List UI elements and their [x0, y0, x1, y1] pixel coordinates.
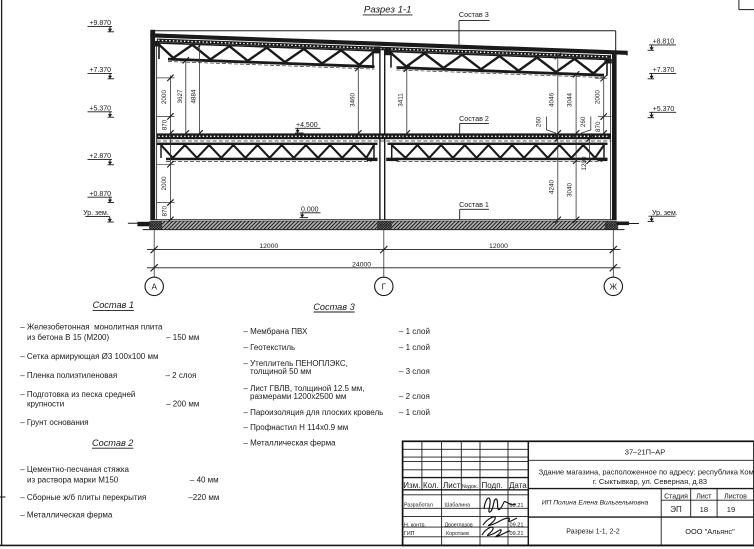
svg-text:3411: 3411	[398, 93, 405, 107]
svg-text:Состав 2: Состав 2	[459, 114, 489, 123]
svg-text:толщиной 50 мм: толщиной 50 мм	[250, 367, 311, 376]
svg-text:А: А	[151, 282, 157, 291]
svg-text:1200: 1200	[581, 156, 588, 171]
svg-text:Состав 3: Состав 3	[313, 302, 355, 312]
svg-text:+5.370: +5.370	[653, 106, 675, 113]
svg-text:09.21: 09.21	[510, 503, 524, 509]
svg-text:– Сборные ж/б плиты перекрытия: – Сборные ж/б плиты перекрытия	[20, 493, 146, 502]
svg-text:+7.370: +7.370	[653, 67, 675, 74]
svg-text:12000: 12000	[489, 243, 508, 250]
svg-text:– 150 мм: – 150 мм	[166, 333, 199, 342]
svg-text:Стадия: Стадия	[664, 493, 688, 500]
svg-text:Г: Г	[382, 282, 387, 291]
svg-text:09.21: 09.21	[510, 531, 524, 537]
svg-text:2000: 2000	[161, 176, 168, 191]
svg-text:– Пленка полиэтиленовая: – Пленка полиэтиленовая	[20, 371, 117, 380]
svg-text:+7.370: +7.370	[89, 67, 111, 74]
svg-text:– 1 слой: – 1 слой	[399, 327, 430, 336]
svg-text:Состав 1: Состав 1	[459, 200, 489, 209]
svg-text:Дата: Дата	[509, 481, 527, 490]
svg-text:– Подготовка из песка средней: – Подготовка из песка средней	[20, 390, 135, 399]
svg-text:–220 мм: –220 мм	[188, 493, 219, 502]
svg-text:2000: 2000	[161, 90, 168, 105]
svg-text:– Железобетонная монолитная п: – Железобетонная монолитная плита	[20, 322, 163, 331]
svg-text:Кол.: Кол.	[423, 481, 439, 490]
svg-text:– Мембрана ПВХ: – Мембрана ПВХ	[243, 327, 308, 336]
svg-text:24000: 24000	[352, 261, 371, 268]
svg-text:Лист: Лист	[696, 493, 712, 500]
svg-text:Изм.: Изм.	[403, 481, 420, 490]
svg-text:2000: 2000	[594, 90, 601, 105]
svg-text:– Сетка армирующая Ø3 100х100: – Сетка армирующая Ø3 100х100 мм	[20, 352, 158, 361]
svg-text:ГИП: ГИП	[404, 531, 415, 537]
svg-text:– 1 слой: – 1 слой	[399, 343, 430, 352]
svg-text:Коротаев: Коротаев	[446, 531, 469, 537]
svg-text:870: 870	[162, 205, 169, 216]
svg-text:4884: 4884	[191, 89, 198, 104]
svg-text:– 3 слоя: – 3 слоя	[399, 367, 430, 376]
svg-text:Подп.: Подп.	[482, 481, 503, 490]
svg-text:– 2 слоя: – 2 слоя	[166, 371, 197, 380]
svg-text:260: 260	[536, 116, 543, 127]
svg-text:Разработал: Разработал	[404, 503, 433, 509]
svg-text:ЭП: ЭП	[670, 505, 682, 514]
svg-text:– Цементно-песчаная стяжка: – Цементно-песчаная стяжка	[20, 465, 129, 474]
svg-text:37–21П–АР: 37–21П–АР	[625, 448, 665, 457]
svg-text:4046: 4046	[548, 93, 555, 108]
svg-text:3627: 3627	[177, 89, 184, 104]
svg-text:260: 260	[580, 116, 587, 127]
svg-text:Двоеглазов: Двоеглазов	[445, 522, 473, 528]
svg-text:ООО "Альянс": ООО "Альянс"	[685, 527, 735, 536]
svg-text:– Металлическая ферма: – Металлическая ферма	[243, 439, 336, 448]
svg-text:19: 19	[727, 505, 735, 514]
svg-text:Ур. зем.: Ур. зем.	[83, 210, 109, 217]
svg-text:из раствора марки М150: из раствора марки М150	[27, 476, 119, 485]
svg-text:– 2 слоя: – 2 слоя	[399, 392, 430, 401]
svg-text:Разрезы 1-1, 2-2: Разрезы 1-1, 2-2	[566, 529, 620, 536]
svg-text:Н. контр.: Н. контр.	[404, 522, 426, 528]
svg-text:Здание магазина, расположенное: Здание магазина, расположенное по адресу…	[539, 467, 754, 476]
svg-text:– Пароизоляция для плоских кро: – Пароизоляция для плоских кровель	[243, 408, 383, 417]
svg-text:– Профнастил Н 114х0.9 мм: – Профнастил Н 114х0.9 мм	[243, 423, 348, 432]
svg-text:из бетона В 15 (М200): из бетона В 15 (М200)	[27, 333, 110, 342]
svg-text:крупности: крупности	[27, 399, 64, 408]
svg-text:Листов: Листов	[724, 493, 747, 500]
svg-text:№док.: №док.	[462, 484, 479, 490]
svg-text:12000: 12000	[259, 243, 278, 250]
svg-text:3044: 3044	[566, 93, 573, 108]
svg-text:Состав 2: Состав 2	[92, 438, 133, 448]
svg-text:4240: 4240	[548, 180, 555, 195]
svg-text:г. Сыктывкар, ул. Северная, д.: г. Сыктывкар, ул. Северная, д.83	[593, 477, 707, 486]
svg-text:– Геотекстиль: – Геотекстиль	[243, 343, 295, 352]
svg-text:+4,500: +4,500	[296, 122, 318, 129]
svg-text:870: 870	[595, 121, 602, 132]
svg-text:Состав 3: Состав 3	[459, 10, 489, 19]
svg-text:– Металлическая ферма: – Металлическая ферма	[20, 511, 113, 520]
svg-text:870: 870	[162, 119, 169, 130]
svg-text:09.21: 09.21	[510, 523, 524, 529]
svg-text:– 1 слой: – 1 слой	[399, 408, 430, 417]
svg-text:3460: 3460	[349, 93, 356, 108]
svg-text:– 200 мм: – 200 мм	[166, 399, 199, 408]
svg-text:Разрез 1-1: Разрез 1-1	[364, 5, 412, 16]
svg-text:Лист: Лист	[443, 481, 461, 490]
svg-text:– Грунт основания: – Грунт основания	[20, 418, 88, 427]
svg-text:0,000: 0,000	[301, 206, 319, 213]
svg-text:– 40 мм: – 40 мм	[190, 476, 219, 485]
svg-text:Ж: Ж	[610, 282, 618, 291]
svg-text:ИП Полина Елена Вильгельмовна: ИП Полина Елена Вильгельмовна	[542, 499, 649, 506]
svg-text:3040: 3040	[566, 183, 573, 198]
svg-text:размерами 1200х2500 мм: размерами 1200х2500 мм	[250, 392, 346, 401]
svg-text:Состав 1: Состав 1	[93, 300, 134, 310]
svg-text:Шабалина: Шабалина	[445, 503, 471, 509]
svg-text:18: 18	[700, 505, 708, 514]
svg-text:+5.370: +5.370	[89, 105, 111, 112]
